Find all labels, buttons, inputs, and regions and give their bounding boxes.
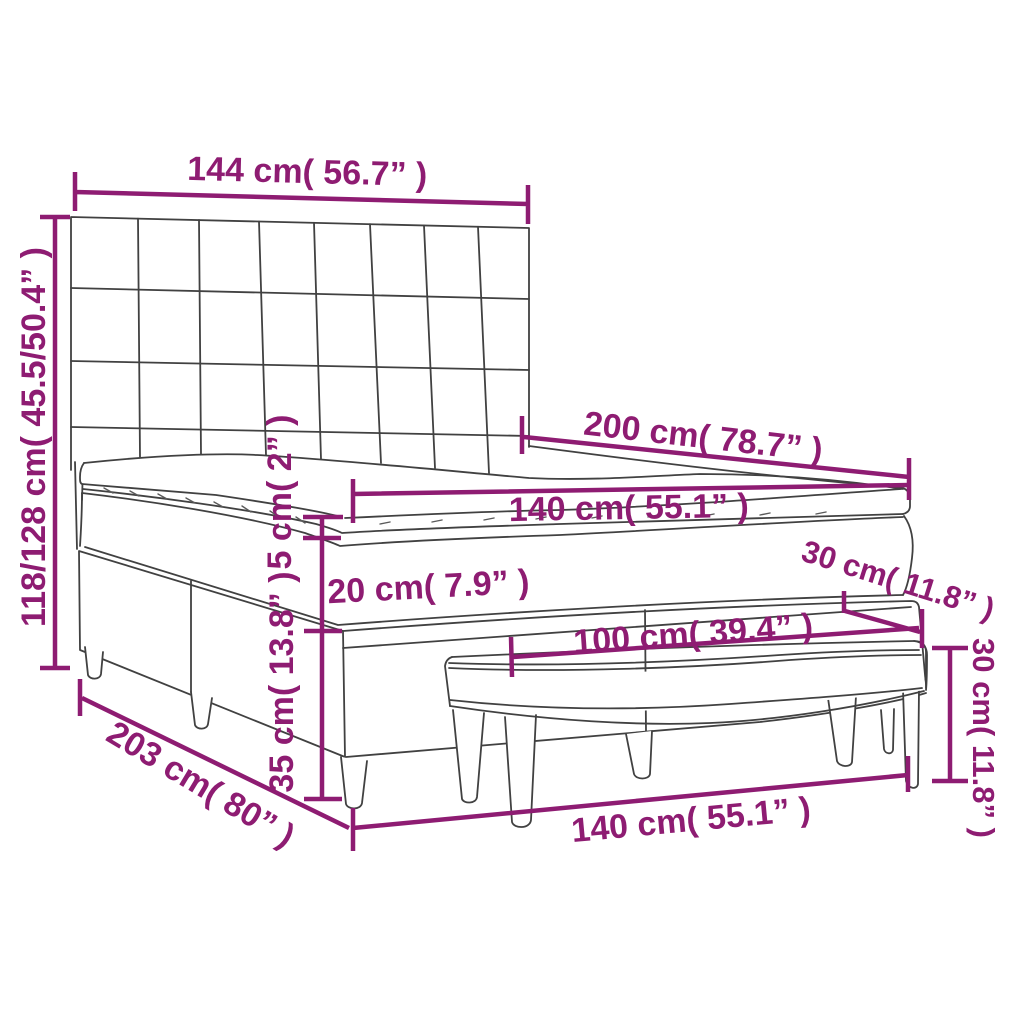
svg-text:5 cm( 2” ): 5 cm( 2” ) [261,415,299,570]
svg-text:118/128 cm( 45.5/50.4” ): 118/128 cm( 45.5/50.4” ) [15,247,53,627]
svg-text:30 cm( 11.8” ): 30 cm( 11.8” ) [966,638,1001,838]
svg-text:35 cm( 13.8” ): 35 cm( 13.8” ) [263,571,301,792]
svg-text:144 cm( 56.7” ): 144 cm( 56.7” ) [187,150,428,194]
svg-text:140 cm( 55.1” ): 140 cm( 55.1” ) [508,487,749,529]
